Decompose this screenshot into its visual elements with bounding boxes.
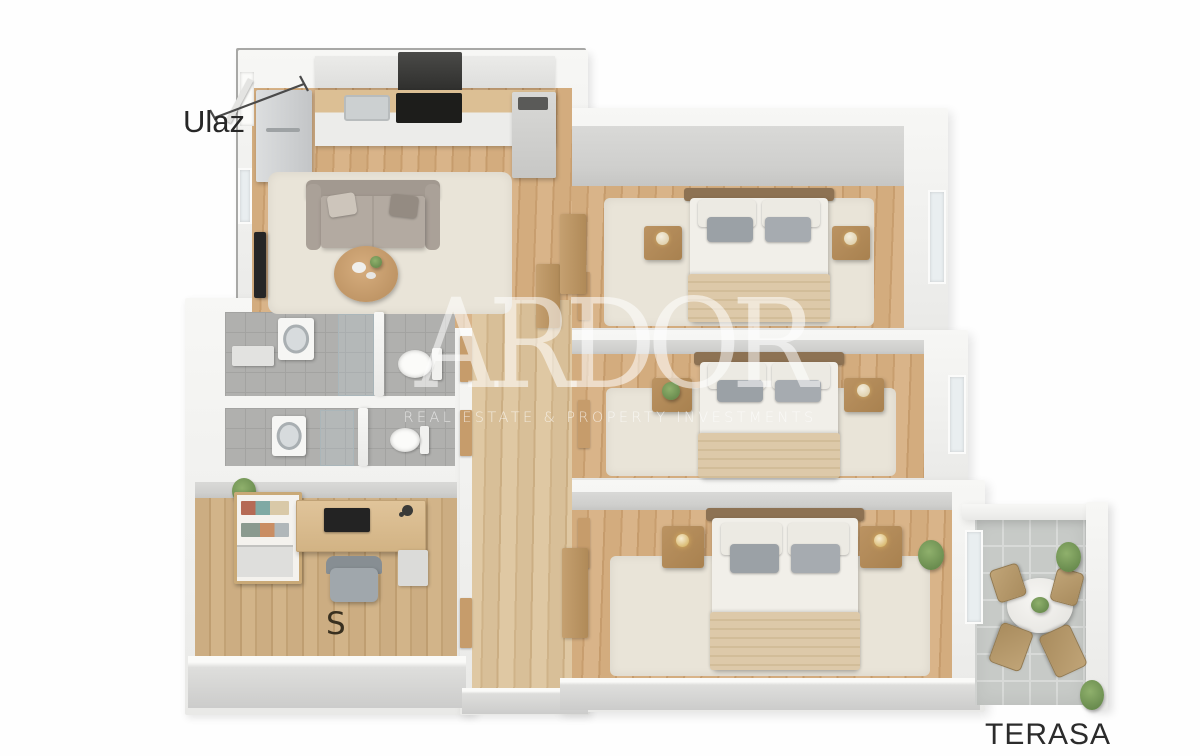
laptop	[324, 508, 370, 532]
toilet-2-bowl	[390, 428, 420, 452]
bedroom-1-wardrobe	[560, 214, 586, 294]
sofa-pillow-right	[389, 193, 419, 218]
terrace-right-wall	[1086, 502, 1108, 710]
bedroom-1-wall-face	[572, 126, 904, 186]
study-label: S	[326, 606, 346, 642]
shelf-books-2	[241, 523, 289, 537]
shelf-drawer	[237, 545, 293, 577]
office-chair-seat	[330, 568, 378, 602]
bed-1-pillow-gray-right	[765, 217, 812, 241]
door-frame-bathroom-1	[460, 336, 472, 382]
bedroom-1-window	[928, 190, 946, 284]
entrance-label: Ulaz	[183, 104, 245, 140]
floor-plan-render: Ulaz S TERASA ARDOR REAL ESTATE & PROPER…	[0, 0, 1200, 756]
bedroom-3-window	[965, 530, 983, 624]
office-chair	[326, 556, 382, 606]
bed-3	[712, 508, 858, 670]
coffee-table-plant	[370, 256, 382, 268]
sofa	[306, 180, 440, 250]
cooktop	[396, 93, 462, 123]
bedroom-1-lamp-left	[656, 232, 669, 245]
bed-3-pillow-gray-left	[730, 544, 780, 573]
terrace-label: TERASA	[985, 718, 1103, 752]
bedroom-3-lamp-right	[874, 534, 887, 547]
bed-3-pillow-gray-right	[791, 544, 841, 573]
bathroom-2-partition	[358, 408, 368, 466]
bedroom-3-wardrobe	[562, 548, 588, 638]
sofa-arm-right	[425, 184, 440, 250]
bedroom-1-lamp-right	[844, 232, 857, 245]
bed-3-blanket	[710, 612, 860, 670]
door-frame-bedroom-2	[578, 400, 590, 448]
shelf-books	[241, 501, 289, 515]
terrace-table-plant	[1031, 597, 1049, 613]
bed-2-pillow-gray-left	[717, 380, 764, 403]
door-frame-bathroom-2	[460, 410, 472, 456]
washing-machine-1	[278, 318, 314, 360]
terrace-plant-bottom	[1080, 680, 1104, 710]
bed-2-blanket	[698, 433, 840, 478]
fridge-handle	[266, 128, 300, 132]
hallway-sideboard	[536, 264, 560, 328]
living-room-window	[238, 168, 252, 224]
bedroom-3-lamp-left	[676, 534, 689, 547]
bathroom-1-cabinet	[232, 346, 274, 366]
toilet-2-tank	[420, 426, 429, 454]
shower-glass-1	[338, 314, 374, 396]
bedroom-2-lamp-right	[857, 384, 870, 397]
bathroom-1-partition	[374, 312, 384, 396]
coffee-table-decor	[352, 262, 366, 273]
sofa-arm-left	[306, 184, 321, 250]
terrace-top-wall	[962, 504, 1090, 520]
shower-glass-2	[320, 410, 354, 466]
desk-lamp	[402, 505, 413, 516]
bedroom-3-nightstand-right	[860, 526, 902, 568]
bedroom-3-nightstand-left	[662, 526, 704, 568]
bedroom-3-plant	[918, 540, 944, 570]
washing-machine-2	[272, 416, 306, 456]
study-front-wall	[188, 656, 466, 708]
kitchen-sink	[344, 95, 390, 121]
bedroom-2-window	[948, 375, 966, 454]
bed-2-pillow-gray-right	[775, 380, 822, 403]
coffee-table	[334, 246, 398, 302]
sofa-pillow-left	[326, 192, 357, 218]
bedroom-2-plant	[662, 382, 680, 400]
bed-1-pillow-gray-left	[707, 217, 754, 241]
bed-1-blanket	[688, 274, 830, 322]
door-frame-study	[460, 598, 472, 648]
terrace-plant-top	[1056, 542, 1081, 572]
bed-1	[690, 188, 828, 322]
bedroom-3-front-wall	[560, 678, 980, 710]
toilet-1-bowl	[398, 350, 432, 378]
study-shelf	[234, 492, 302, 584]
desk-drawer-unit	[398, 550, 428, 586]
hallway-floor	[472, 300, 572, 690]
range-hood	[398, 52, 462, 92]
toilet-1-tank	[432, 348, 442, 380]
bed-2	[700, 352, 838, 478]
small-appliance	[518, 97, 548, 110]
tv-panel	[254, 232, 266, 298]
